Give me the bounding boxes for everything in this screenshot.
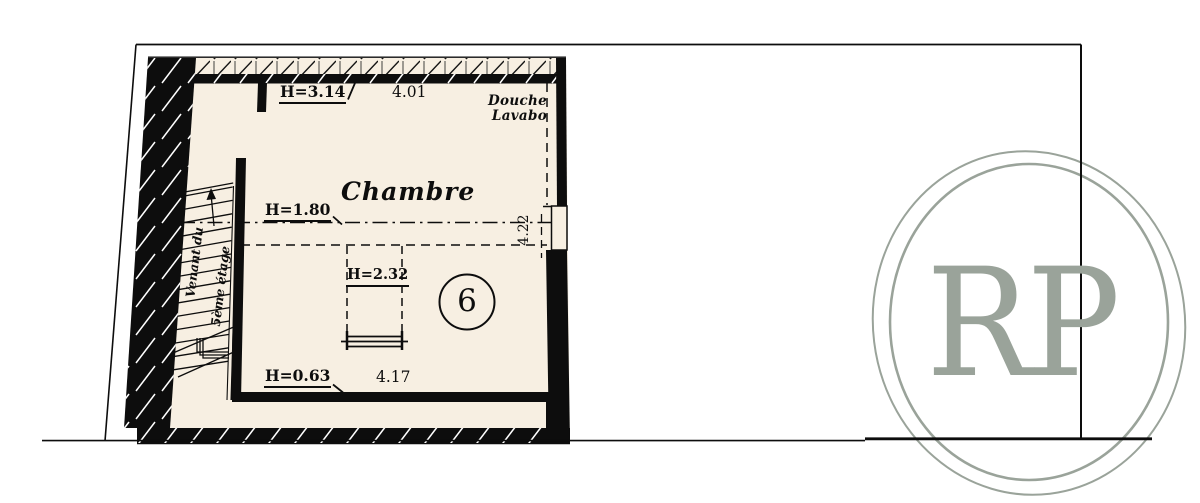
- room-label: Chambre: [341, 179, 475, 204]
- dim-top-height: H=3.14: [279, 84, 346, 104]
- top-wall-hatch: [148, 58, 566, 74]
- dim-top-width: 4.01: [392, 85, 427, 101]
- dim-bottom-height: H=0.63: [264, 368, 331, 388]
- dim-mid-height: H=1.80: [264, 202, 331, 222]
- floor-plan-page: H=3.14 4.01 Douche Lavabo Chambre H=1.80…: [0, 0, 1200, 503]
- right-wall-upper: [556, 58, 567, 206]
- corridor-wall: [232, 392, 566, 402]
- room-number-badge: 6: [452, 286, 482, 317]
- partition-stub-wall: [257, 83, 267, 112]
- right-duct-box: [552, 206, 568, 250]
- sink-label: Lavabo: [470, 110, 547, 124]
- logo-monogram: RP: [877, 240, 1165, 410]
- dim-right-depth: 4.22: [517, 208, 533, 252]
- shower-label: Douche: [470, 95, 547, 109]
- dim-skylight-height: H=2.32: [346, 268, 409, 287]
- dim-bottom-width: 4.17: [376, 370, 411, 386]
